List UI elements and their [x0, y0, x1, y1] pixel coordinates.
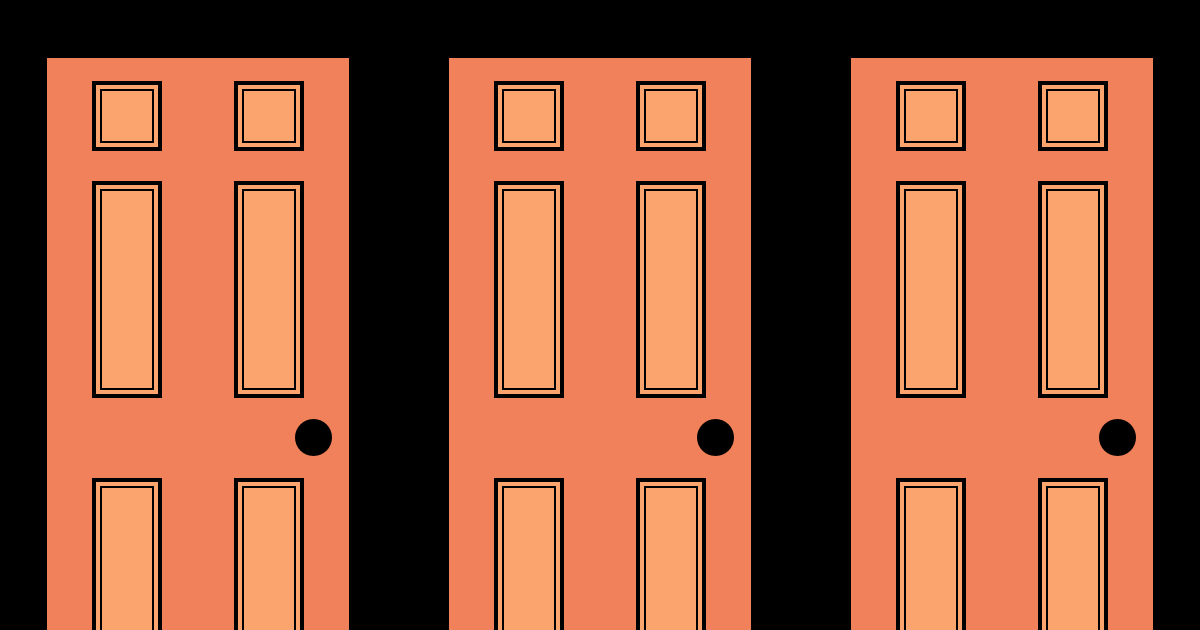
door-panel-inner-frame [904, 189, 958, 390]
scene [0, 0, 1200, 630]
door-middle[interactable] [449, 58, 751, 630]
door-knob-icon[interactable] [1099, 419, 1136, 456]
door-panel-inner-frame [502, 189, 556, 390]
door-panel-inner-frame [904, 89, 958, 143]
door-panel-bottom-right [1038, 478, 1108, 630]
door-panel-inner-frame [100, 486, 154, 630]
door-panel-middle-left [494, 181, 564, 398]
door-panel-top-right [636, 81, 706, 151]
door-panel-inner-frame [100, 89, 154, 143]
door-right[interactable] [851, 58, 1153, 630]
door-panel-bottom-left [92, 478, 162, 630]
door-panel-inner-frame [100, 189, 154, 390]
door-panel-middle-right [234, 181, 304, 398]
door-panel-inner-frame [644, 486, 698, 630]
door-panel-inner-frame [242, 189, 296, 390]
door-left[interactable] [47, 58, 349, 630]
door-panel-middle-right [1038, 181, 1108, 398]
door-panel-inner-frame [1046, 486, 1100, 630]
door-panel-bottom-right [636, 478, 706, 630]
door-panel-top-left [92, 81, 162, 151]
door-panel-inner-frame [644, 89, 698, 143]
door-panel-inner-frame [644, 189, 698, 390]
door-knob-icon[interactable] [295, 419, 332, 456]
door-panel-middle-left [896, 181, 966, 398]
door-panel-top-left [494, 81, 564, 151]
door-panel-top-right [1038, 81, 1108, 151]
door-knob-icon[interactable] [697, 419, 734, 456]
door-panel-bottom-left [494, 478, 564, 630]
door-panel-inner-frame [502, 486, 556, 630]
door-panel-inner-frame [904, 486, 958, 630]
door-panel-top-left [896, 81, 966, 151]
door-panel-middle-right [636, 181, 706, 398]
door-panel-bottom-right [234, 478, 304, 630]
door-panel-bottom-left [896, 478, 966, 630]
door-panel-inner-frame [502, 89, 556, 143]
door-panel-inner-frame [242, 89, 296, 143]
door-panel-inner-frame [242, 486, 296, 630]
door-panel-top-right [234, 81, 304, 151]
door-panel-middle-left [92, 181, 162, 398]
door-panel-inner-frame [1046, 89, 1100, 143]
door-panel-inner-frame [1046, 189, 1100, 390]
